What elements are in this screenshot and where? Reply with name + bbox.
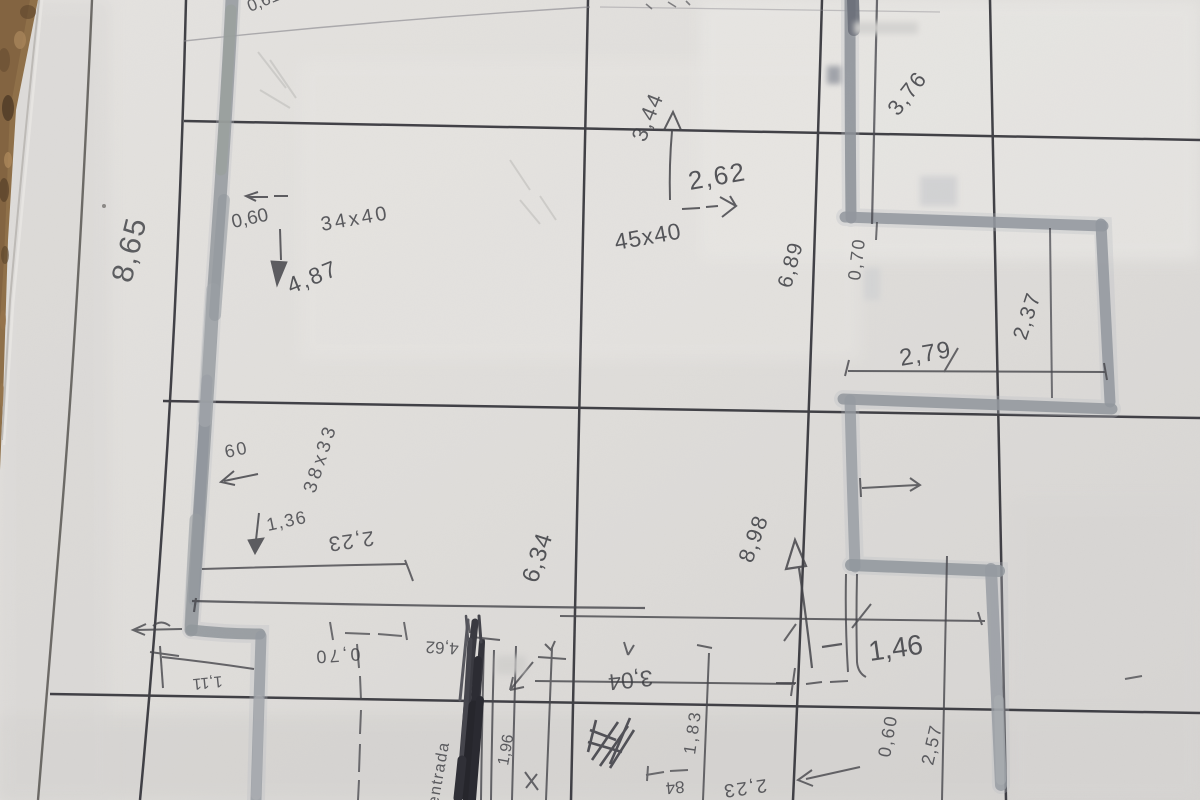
svg-text:84: 84 [665,777,686,798]
svg-text:4,62: 4,62 [425,637,459,658]
svg-text:1,11: 1,11 [192,672,224,692]
svg-text:0,70: 0,70 [313,644,361,667]
svg-text:3,04: 3,04 [607,665,654,696]
